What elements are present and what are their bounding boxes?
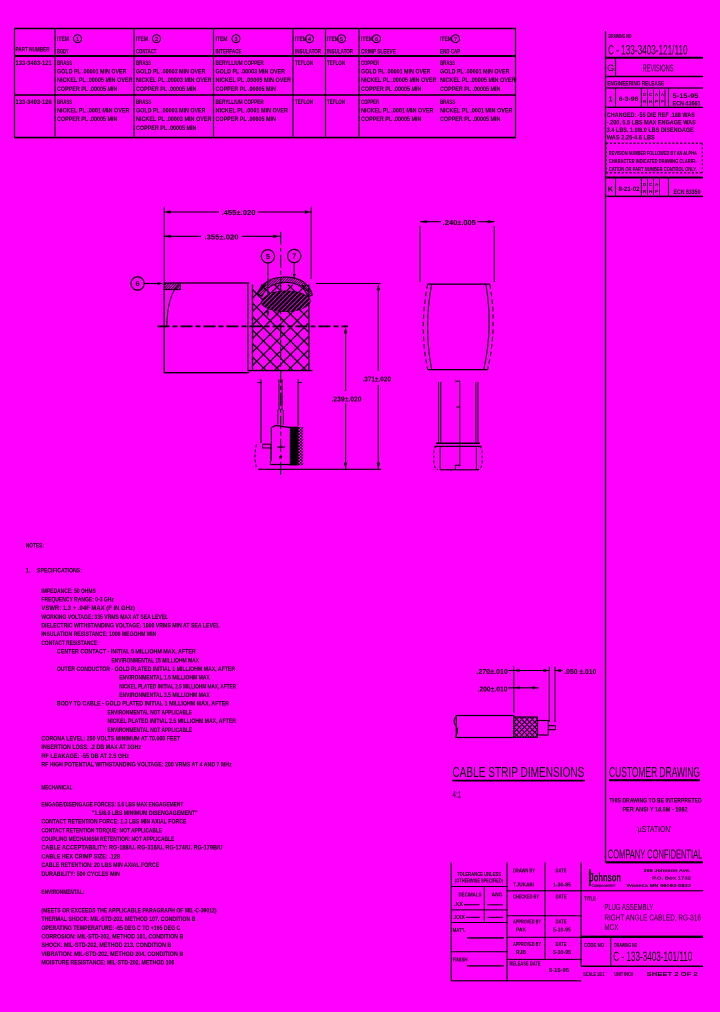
svg-text:NICKEL PLATED INITIAL 2.5 MILL: NICKEL PLATED INITIAL 2.5 MILLIOHM MAX, …	[119, 684, 236, 690]
svg-text:ENVIRONMENTAL 3.5 MILLIOHM MAX: ENVIRONMENTAL 3.5 MILLIOHM MAX	[119, 693, 210, 699]
svg-text:BODY TO CABLE - GOLD PLATED IN: BODY TO CABLE - GOLD PLATED INITIAL 1 MI…	[57, 702, 230, 708]
svg-text:Components®: Components®	[592, 882, 617, 888]
svg-text:"1.5/8.0 LBS MINIMUM DISENGAGE: "1.5/8.0 LBS MINIMUM DISENGAGEMENT"	[92, 811, 198, 817]
svg-text:CUSTOMER DRAWING: CUSTOMER DRAWING	[609, 764, 700, 781]
svg-text:MOISTURE RESISTANCE: MIL-STD-2: MOISTURE RESISTANCE: MIL-STD-202, METHOD…	[41, 961, 174, 967]
svg-text:NICKEL PL .0001 MIN OVER: NICKEL PL .0001 MIN OVER	[57, 109, 130, 115]
svg-text:BODY: BODY	[57, 50, 69, 56]
svg-text:CHECKED BY: CHECKED BY	[513, 895, 540, 901]
svg-text:FREQUENCY RANGE: 0-3 GHz: FREQUENCY RANGE: 0-3 GHz	[41, 597, 114, 603]
svg-text:IMPEDANCE: 50 OHMS: IMPEDANCE: 50 OHMS	[41, 589, 95, 595]
svg-text:ITEM: ITEM	[136, 37, 148, 43]
svg-text:GOLD PL .00003 MIN OVER: GOLD PL .00003 MIN OVER	[136, 70, 206, 76]
svg-text:NICKEL PL .00005 MIN OVER: NICKEL PL .00005 MIN OVER	[440, 78, 516, 84]
svg-text:.355±.020: .355±.020	[205, 235, 239, 242]
svg-text:BERYLLIUM COPPER: BERYLLIUM COPPER	[216, 100, 265, 106]
svg-text:CENTER CONTACT - INITIAL 5 MIL: CENTER CONTACT - INITIAL 5 MILLIOHM MAX,…	[57, 650, 196, 656]
svg-text:P: P	[655, 189, 658, 194]
svg-text:TITLE: TITLE	[584, 896, 597, 902]
svg-text:COPPER PL .00005 MIN: COPPER PL .00005 MIN	[361, 117, 421, 123]
svg-text:CONTACT RETENTION TORQUE: NOT: CONTACT RETENTION TORQUE: NOT APPLICABLE	[41, 828, 162, 834]
svg-text:ENGAGE/DISENGAGE FORCES: 5.6 L: ENGAGE/DISENGAGE FORCES: 5.6 LBS MAX ENG…	[41, 802, 183, 808]
svg-text:.455±.020: .455±.020	[222, 210, 256, 217]
svg-text:COPPER PL .00005 MIN: COPPER PL .00005 MIN	[216, 117, 276, 123]
svg-text:COUPLING MECHANISM RETENTION:: COUPLING MECHANISM RETENTION: NOT APPLIC…	[41, 837, 174, 843]
svg-text:RF HIGH POTENTIAL WITHSTANDING: RF HIGH POTENTIAL WITHSTANDING VOLTAGE: …	[41, 763, 231, 769]
svg-text:WAS 2.25-4.6 LBS: WAS 2.25-4.6 LBS	[607, 135, 655, 142]
svg-text:R: R	[643, 189, 646, 194]
svg-text:INSULATOR: INSULATOR	[295, 50, 322, 56]
svg-text:OUTER CONDUCTOR - GOLD PLATED: OUTER CONDUCTOR - GOLD PLATED INITIAL 1 …	[57, 667, 236, 673]
svg-text:END CAP: END CAP	[440, 50, 460, 56]
svg-text:GOLD PL .00001 MIN OVER: GOLD PL .00001 MIN OVER	[57, 70, 127, 76]
svg-text:SPECIFICATIONS:: SPECIFICATIONS:	[37, 569, 82, 575]
svg-text:A: A	[661, 92, 664, 97]
svg-text:ENGINEERING RELEASE: ENGINEERING RELEASE	[607, 81, 664, 87]
svg-text:FINISH: FINISH	[453, 958, 468, 964]
svg-text:.050 ±.010: .050 ±.010	[564, 669, 596, 676]
svg-text:.270±.010: .270±.010	[476, 669, 508, 676]
svg-text:CORROSION: MIL-STD-202, METHOD: CORROSION: MIL-STD-202, METHOD 101, COND…	[41, 935, 183, 941]
svg-text:D: D	[643, 182, 646, 187]
svg-text:GOLD PL .00001 MIN OVER: GOLD PL .00001 MIN OVER	[361, 70, 431, 76]
svg-text:8-21-02: 8-21-02	[619, 187, 641, 193]
svg-text:C: C	[649, 92, 652, 97]
svg-text:CABLE HEX CRIMP SIZE: .128: CABLE HEX CRIMP SIZE: .128	[41, 854, 120, 860]
svg-text:COPPER PL .00005 MIN: COPPER PL .00005 MIN	[136, 126, 196, 132]
svg-text:G: G	[607, 63, 614, 73]
svg-text:NICKEL PL .00005 MIN OVER: NICKEL PL .00005 MIN OVER	[361, 78, 437, 84]
svg-text:ECN 43661: ECN 43661	[673, 101, 702, 107]
svg-text:(OTHERWISE SPECIFIED): (OTHERWISE SPECIFIED)	[455, 879, 503, 885]
svg-text:COPPER PL .00005 MIN: COPPER PL .00005 MIN	[361, 87, 421, 93]
svg-text:P: P	[655, 99, 658, 104]
svg-text:ITEM: ITEM	[216, 37, 228, 43]
svg-text:CHANGED: -55 DIE REF .188 WAS: CHANGED: -55 DIE REF .188 WAS	[607, 112, 695, 119]
svg-text:RELEASE DATE: RELEASE DATE	[510, 962, 542, 968]
svg-text:WORKING VOLTAGE: 335 VRMS MAX: WORKING VOLTAGE: 335 VRMS MAX AT SEA LEV…	[41, 615, 168, 621]
svg-text:6: 6	[136, 279, 140, 288]
svg-text:-.200, 5.5 LBS MAX ENGAGE WAS: -.200, 5.5 LBS MAX ENGAGE WAS	[607, 120, 696, 127]
svg-text:ENVIRONMENTAL NOT APPLICABLE: ENVIRONMENTAL NOT APPLICABLE	[108, 728, 193, 734]
svg-text:INSULATION RESISTANCE: 1000 ME: INSULATION RESISTANCE: 1000 MEGOHM MIN	[41, 632, 156, 638]
svg-text:ENVIRONMENTAL 15 MILLIOHM MAX: ENVIRONMENTAL 15 MILLIOHM MAX	[111, 658, 199, 664]
svg-text:BERYLLIUM COPPER: BERYLLIUM COPPER	[216, 61, 265, 67]
svg-text:PER ANSI Y 14.5M - 1982: PER ANSI Y 14.5M - 1982	[623, 807, 688, 814]
svg-text:VSWR: 1.3 + .04F MAX (F IN GHz: VSWR: 1.3 + .04F MAX (F IN GHz)	[41, 606, 135, 612]
svg-text:P: P	[661, 99, 664, 104]
svg-text:6-3-96: 6-3-96	[619, 97, 639, 103]
svg-text:THIS DRAWING TO BE INTERPRETED: THIS DRAWING TO BE INTERPRETED	[609, 798, 702, 805]
svg-text:REVISIONS: REVISIONS	[643, 63, 674, 75]
svg-text:7: 7	[292, 252, 296, 261]
svg-text:1.: 1.	[26, 569, 31, 575]
svg-text:CRIMP SLEEVE: CRIMP SLEEVE	[361, 50, 396, 56]
svg-text:C - 133-3403-121/110: C - 133-3403-121/110	[608, 42, 688, 58]
svg-text:INSULATOR: INSULATOR	[327, 50, 354, 56]
svg-text:RJB: RJB	[516, 950, 526, 956]
svg-text:GOLD PL .00001 MIN OVER: GOLD PL .00001 MIN OVER	[440, 70, 510, 76]
svg-text:2: 2	[155, 37, 158, 43]
svg-text:NICKEL PL .00005 MIN OVER: NICKEL PL .00005 MIN OVER	[57, 78, 133, 84]
svg-text:NICKEL PL .0001 MIN OVER: NICKEL PL .0001 MIN OVER	[216, 109, 289, 115]
svg-text:DATE: DATE	[556, 869, 568, 875]
svg-text:(MEETS OR EXCEEDS THE APPLICAB: (MEETS OR EXCEEDS THE APPLICABLE PARAGRA…	[41, 909, 216, 915]
svg-text:GOLD PL .00003 MIN OVER: GOLD PL .00003 MIN OVER	[216, 70, 286, 76]
svg-text:TEFLON: TEFLON	[327, 100, 345, 106]
svg-text:H: H	[649, 189, 652, 194]
svg-text:.XX: .XX	[454, 902, 464, 908]
svg-text:CORONA LEVEL: 250 VOLTS MINIMU: CORONA LEVEL: 250 VOLTS MINIMUM AT 70,00…	[41, 736, 180, 742]
svg-text:ANG: ANG	[492, 893, 503, 899]
svg-text:ENVIRONMENTAL 1.5 MILLIOHM MAX: ENVIRONMENTAL 1.5 MILLIOHM MAX	[119, 676, 210, 682]
svg-text:TEFLON: TEFLON	[327, 61, 345, 67]
svg-text:SCALE 10/1: SCALE 10/1	[583, 972, 604, 978]
svg-text:A: A	[655, 182, 658, 187]
svg-text:CODE NO: CODE NO	[584, 943, 604, 949]
svg-text:GOLD PL .00003 MIN OVER: GOLD PL .00003 MIN OVER	[136, 109, 206, 115]
svg-text:PART NUMBER: PART NUMBER	[16, 48, 51, 54]
svg-text:BRASS: BRASS	[57, 100, 72, 106]
svg-text:ITEM: ITEM	[361, 37, 373, 43]
svg-text:APPROVED BY: APPROVED BY	[513, 920, 542, 926]
svg-text:3.4 LBS, 1.0/8.0 LBS DISENGAGE: 3.4 LBS, 1.0/8.0 LBS DISENGAGE	[607, 127, 694, 134]
svg-text:UNIT INCH: UNIT INCH	[614, 972, 633, 978]
svg-text:4:1: 4:1	[452, 790, 461, 800]
svg-text:THERMAL SHOCK: MIL-STD-202, ME: THERMAL SHOCK: MIL-STD-202, METHOD 107, …	[41, 917, 196, 923]
svg-text:CONTACT: CONTACT	[136, 50, 157, 56]
svg-text:COPPER PL .00005 MIN: COPPER PL .00005 MIN	[440, 87, 500, 93]
svg-text:5: 5	[340, 37, 343, 43]
svg-text:DIELECTRIC WITHSTANDING VOLTAG: DIELECTRIC WITHSTANDING VOLTAGE: 1000 VR…	[41, 624, 219, 630]
svg-text:COPPER PL .00005 MIN: COPPER PL .00005 MIN	[440, 117, 500, 123]
svg-text:VIBRATION: MIL-STD-202, METHOD: VIBRATION: MIL-STD-202, METHOD 204, COND…	[41, 952, 183, 958]
svg-text:ITEM: ITEM	[57, 37, 69, 43]
svg-text:NICKEL PL .0001 MIN OVER: NICKEL PL .0001 MIN OVER	[361, 109, 434, 115]
svg-text:A: A	[655, 92, 658, 97]
svg-text:BRASS: BRASS	[440, 61, 455, 67]
svg-text:NICKEL PL .00003 MIN OVER: NICKEL PL .00003 MIN OVER	[136, 117, 212, 123]
svg-text:'µSTATION': 'µSTATION'	[637, 824, 672, 834]
svg-text:BRASS: BRASS	[136, 100, 151, 106]
svg-text:COPPER: COPPER	[361, 61, 380, 67]
svg-text:.200±.010: .200±.010	[478, 686, 508, 693]
svg-text:R: R	[643, 99, 646, 104]
svg-text:CABLE RETENTION: 20 LBS MIN AX: CABLE RETENTION: 20 LBS MIN AXIAL FORCE	[41, 863, 159, 869]
svg-text:1: 1	[76, 37, 79, 43]
svg-text:DATE: DATE	[556, 942, 568, 948]
svg-text:CONTACT RESISTANCE:: CONTACT RESISTANCE:	[41, 641, 98, 647]
svg-text:BRASS: BRASS	[440, 100, 455, 106]
svg-text:BRASS: BRASS	[57, 61, 72, 67]
svg-text:COPPER PL .00005 MIN: COPPER PL .00005 MIN	[57, 87, 117, 93]
svg-text:Waseca MN 56093-0832: Waseca MN 56093-0832	[627, 883, 692, 889]
svg-text:K: K	[608, 185, 614, 194]
svg-text:ENVIRONMENTAL NOT APPLICABLE: ENVIRONMENTAL NOT APPLICABLE	[108, 710, 193, 716]
svg-text:COPPER PL .00005 MIN: COPPER PL .00005 MIN	[57, 117, 117, 123]
svg-text:PLUG ASSEMBLY: PLUG ASSEMBLY	[604, 903, 653, 912]
svg-text:RIGHT ANGLE CABLED, RG-316: RIGHT ANGLE CABLED, RG-316	[604, 914, 701, 923]
svg-text:C: C	[649, 182, 652, 187]
svg-text:COPPER: COPPER	[361, 100, 380, 106]
svg-text:299 Johnson Ave.: 299 Johnson Ave.	[644, 868, 691, 874]
svg-text:SHEET 2 OF 2: SHEET 2 OF 2	[647, 972, 698, 978]
svg-text:TEFLON: TEFLON	[295, 100, 313, 106]
svg-text:MECHANICAL: MECHANICAL	[41, 785, 72, 791]
svg-text:REVISION NUMBER FOLLOWED BY AN: REVISION NUMBER FOLLOWED BY AN ALPHA	[609, 151, 697, 157]
svg-text:SHOCK: MIL-STD-202, METHOD 213: SHOCK: MIL-STD-202, METHOD 213, CONDITIO…	[41, 943, 171, 949]
svg-text:.240±.005: .240±.005	[443, 220, 476, 227]
svg-text:TEFLON: TEFLON	[295, 61, 313, 67]
svg-text:7: 7	[454, 37, 457, 43]
svg-text:P.O. Box 1732: P.O. Box 1732	[652, 875, 691, 881]
svg-text:CABLE ACCEPTABILITY: RG-188/U,: CABLE ACCEPTABILITY: RG-188/U, RG-316/U,…	[41, 846, 222, 852]
svg-text:.239±.020: .239±.020	[332, 397, 362, 404]
svg-text:5-10-95: 5-10-95	[553, 950, 571, 956]
svg-text:CONTACT RETENTION FORCE: 1.3 L: CONTACT RETENTION FORCE: 1.3 LBS MIN AXI…	[41, 820, 186, 826]
svg-text:MCX: MCX	[604, 923, 619, 932]
svg-text:.XXX: .XXX	[453, 915, 466, 921]
svg-text:DRAWN BY: DRAWN BY	[513, 869, 536, 875]
svg-text:ECN 63359: ECN 63359	[674, 190, 702, 196]
svg-text:DURABILITY: 500 CYCLES MIN: DURABILITY: 500 CYCLES MIN	[41, 872, 120, 878]
svg-text:DATE: DATE	[556, 895, 568, 901]
svg-text:6: 6	[375, 37, 378, 43]
svg-text:NOTES:: NOTES:	[26, 544, 44, 550]
svg-text:5: 5	[266, 252, 270, 261]
svg-text:1-30-85: 1-30-85	[553, 882, 571, 888]
svg-text:COPPER PL .00005 MIN: COPPER PL .00005 MIN	[216, 87, 276, 93]
svg-text:INSERTION LOSS: .2 DB MAX AT 1: INSERTION LOSS: .2 DB MAX AT 1GHz	[41, 745, 141, 751]
svg-text:5-10-95: 5-10-95	[553, 927, 571, 933]
svg-text:NICKEL PLATED INITIAL 2.5 MILL: NICKEL PLATED INITIAL 2.5 MILLIOHM MAX, …	[108, 719, 237, 725]
svg-text:H: H	[649, 99, 652, 104]
svg-text:CABLE STRIP DIMENSIONS: CABLE STRIP DIMENSIONS	[452, 764, 584, 781]
svg-text:BRASS: BRASS	[136, 61, 151, 67]
svg-text:5-15-95: 5-15-95	[673, 94, 700, 100]
svg-text:T.JUKARI: T.JUKARI	[513, 882, 535, 888]
svg-text:DECIMALS: DECIMALS	[459, 893, 483, 899]
svg-text:DRAWING NO: DRAWING NO	[609, 34, 632, 40]
svg-text:COMPANY CONFIDENTIAL: COMPANY CONFIDENTIAL	[608, 847, 703, 862]
svg-text:ITEM: ITEM	[440, 37, 452, 43]
svg-text:NICKEL PL .00003 MIN OVER: NICKEL PL .00003 MIN OVER	[136, 78, 212, 84]
svg-text:PAK: PAK	[516, 927, 526, 933]
svg-text:OPERATING TEMPERATURE: -65 DEG: OPERATING TEMPERATURE: -65 DEG C TO +165…	[41, 926, 180, 932]
svg-text:COPPER PL .00005 MIN: COPPER PL .00005 MIN	[136, 87, 196, 93]
svg-text:RF LEAKAGE: -55 DB AT 2.5 GHz: RF LEAKAGE: -55 DB AT 2.5 GHz	[41, 754, 129, 760]
svg-text:5-15-95: 5-15-95	[549, 968, 569, 974]
svg-text:TOLERANCE UNLESS: TOLERANCE UNLESS	[457, 872, 502, 878]
svg-text:133-3403-121: 133-3403-121	[16, 61, 53, 67]
svg-text:CATION OR PART NUMBER CONTROL: CATION OR PART NUMBER CONTROL ONLY.	[609, 167, 697, 173]
svg-text:INTERFACE: INTERFACE	[216, 50, 242, 56]
svg-text:NICKEL PL .00005 MIN OVER: NICKEL PL .00005 MIN OVER	[216, 78, 292, 84]
svg-text:1: 1	[608, 95, 612, 104]
svg-text:3: 3	[234, 37, 237, 43]
svg-text:D: D	[643, 92, 646, 97]
svg-text:.371±.020: .371±.020	[363, 377, 392, 384]
svg-text:CHARACTER INDICATED DRAWING CL: CHARACTER INDICATED DRAWING CLARIFI-	[609, 159, 697, 165]
svg-text:APPROVED BY: APPROVED BY	[513, 942, 542, 948]
svg-text:NICKEL PL .0001 MIN OVER: NICKEL PL .0001 MIN OVER	[440, 109, 513, 115]
svg-text:ENVIRONMENTAL:: ENVIRONMENTAL:	[41, 890, 84, 896]
svg-text:133-3403-126: 133-3403-126	[16, 100, 53, 106]
svg-text:C - 133-3403-101/110: C - 133-3403-101/110	[613, 948, 692, 964]
svg-text:MAT'L: MAT'L	[453, 928, 466, 934]
svg-text:DATE: DATE	[556, 920, 568, 926]
